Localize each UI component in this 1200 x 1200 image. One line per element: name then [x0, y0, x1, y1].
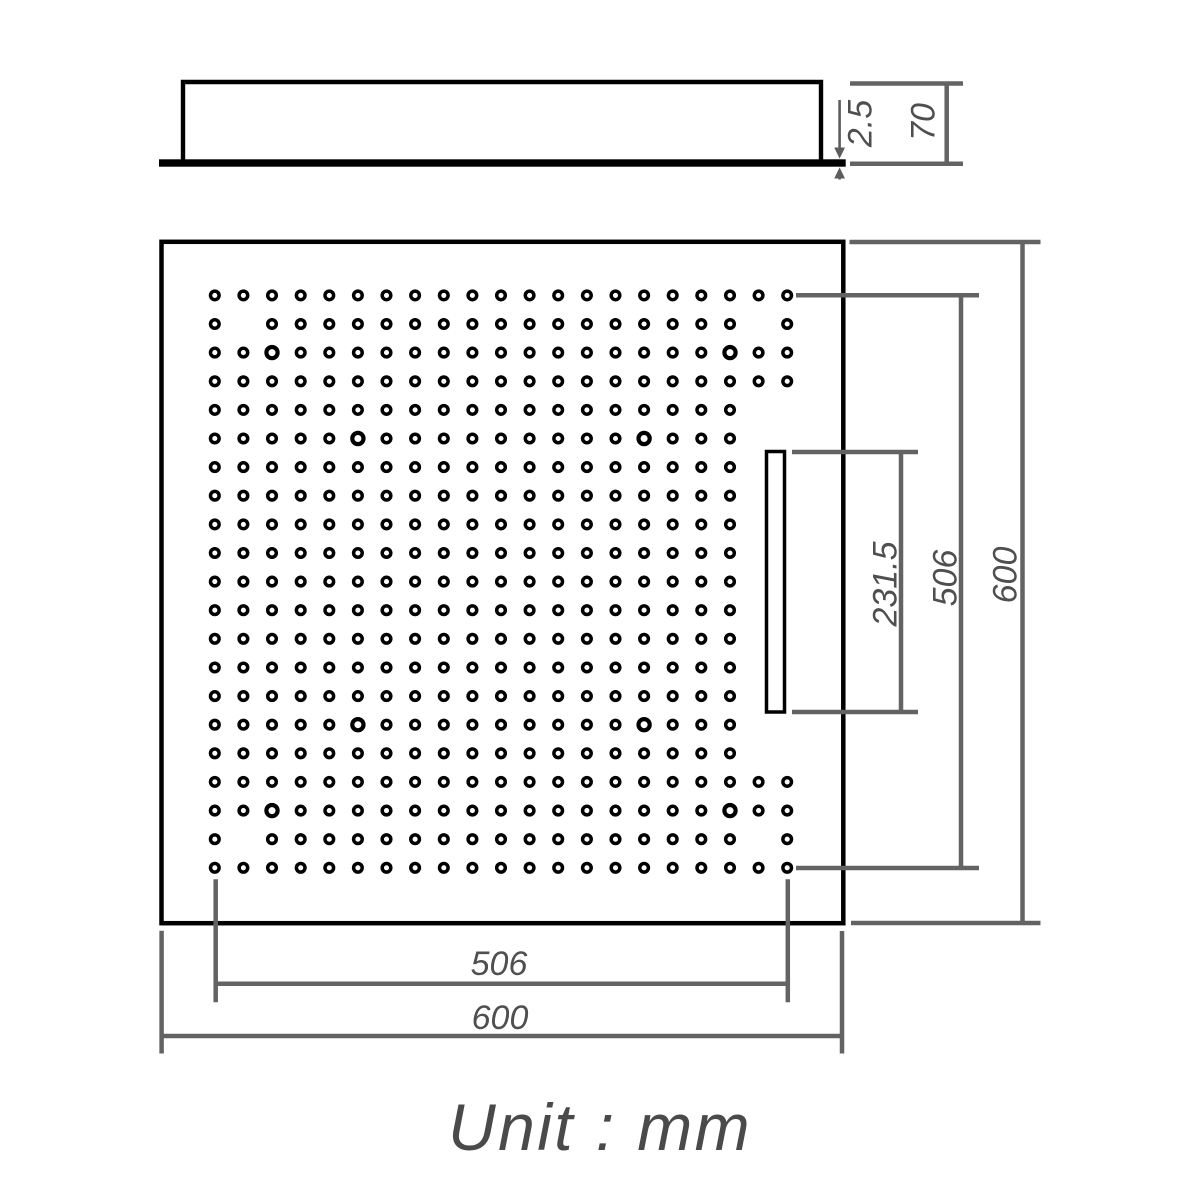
svg-text:2.5: 2.5 — [842, 100, 880, 148]
svg-text:231.5: 231.5 — [867, 541, 905, 627]
svg-text:70: 70 — [905, 103, 943, 141]
svg-text:Unit : mm: Unit : mm — [448, 1090, 752, 1164]
svg-text:600: 600 — [472, 999, 529, 1037]
svg-text:506: 506 — [471, 945, 528, 983]
svg-text:506: 506 — [927, 550, 965, 607]
svg-text:600: 600 — [987, 547, 1025, 604]
